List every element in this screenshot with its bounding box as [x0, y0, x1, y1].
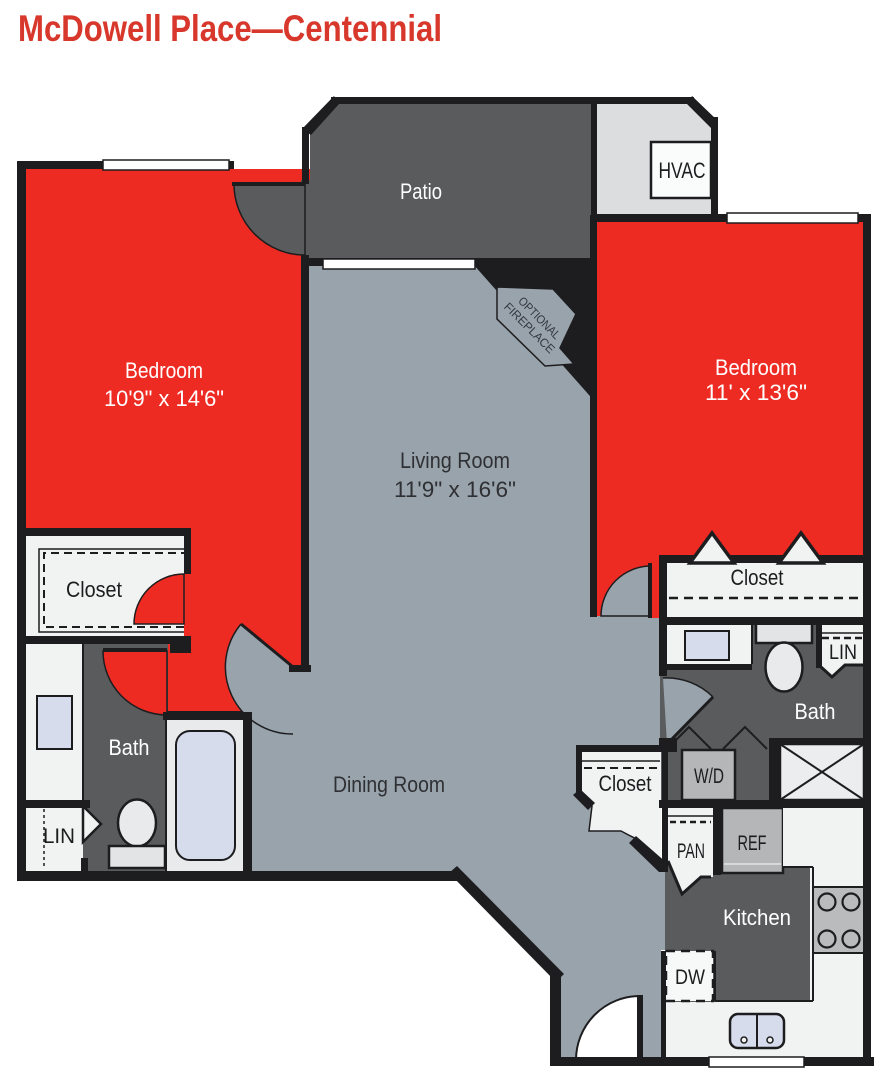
svg-text:Bedroom: Bedroom: [715, 355, 797, 380]
svg-text:Bedroom: Bedroom: [125, 358, 203, 383]
svg-text:Closet: Closet: [599, 771, 652, 796]
svg-text:Closet: Closet: [731, 565, 784, 590]
svg-text:Patio: Patio: [400, 179, 442, 204]
svg-text:DW: DW: [675, 966, 705, 989]
svg-text:11'9" x 16'6": 11'9" x 16'6": [394, 477, 516, 502]
svg-text:Kitchen: Kitchen: [723, 905, 791, 930]
svg-text:HVAC: HVAC: [659, 158, 706, 183]
svg-text:McDowell Place—Centennial: McDowell Place—Centennial: [18, 8, 442, 49]
svg-text:Bath: Bath: [795, 699, 836, 724]
svg-text:Bath: Bath: [109, 735, 150, 760]
svg-text:LIN: LIN: [43, 825, 75, 848]
svg-text:11' x 13'6": 11' x 13'6": [705, 380, 807, 405]
svg-text:Closet: Closet: [66, 577, 122, 602]
svg-text:LIN: LIN: [829, 641, 857, 664]
svg-text:10'9" x 14'6": 10'9" x 14'6": [104, 386, 224, 411]
svg-text:REF: REF: [738, 832, 767, 855]
svg-text:Living Room: Living Room: [400, 448, 510, 473]
svg-text:PAN: PAN: [677, 840, 705, 863]
svg-text:Dining Room: Dining Room: [333, 772, 445, 797]
svg-text:W/D: W/D: [694, 765, 724, 788]
